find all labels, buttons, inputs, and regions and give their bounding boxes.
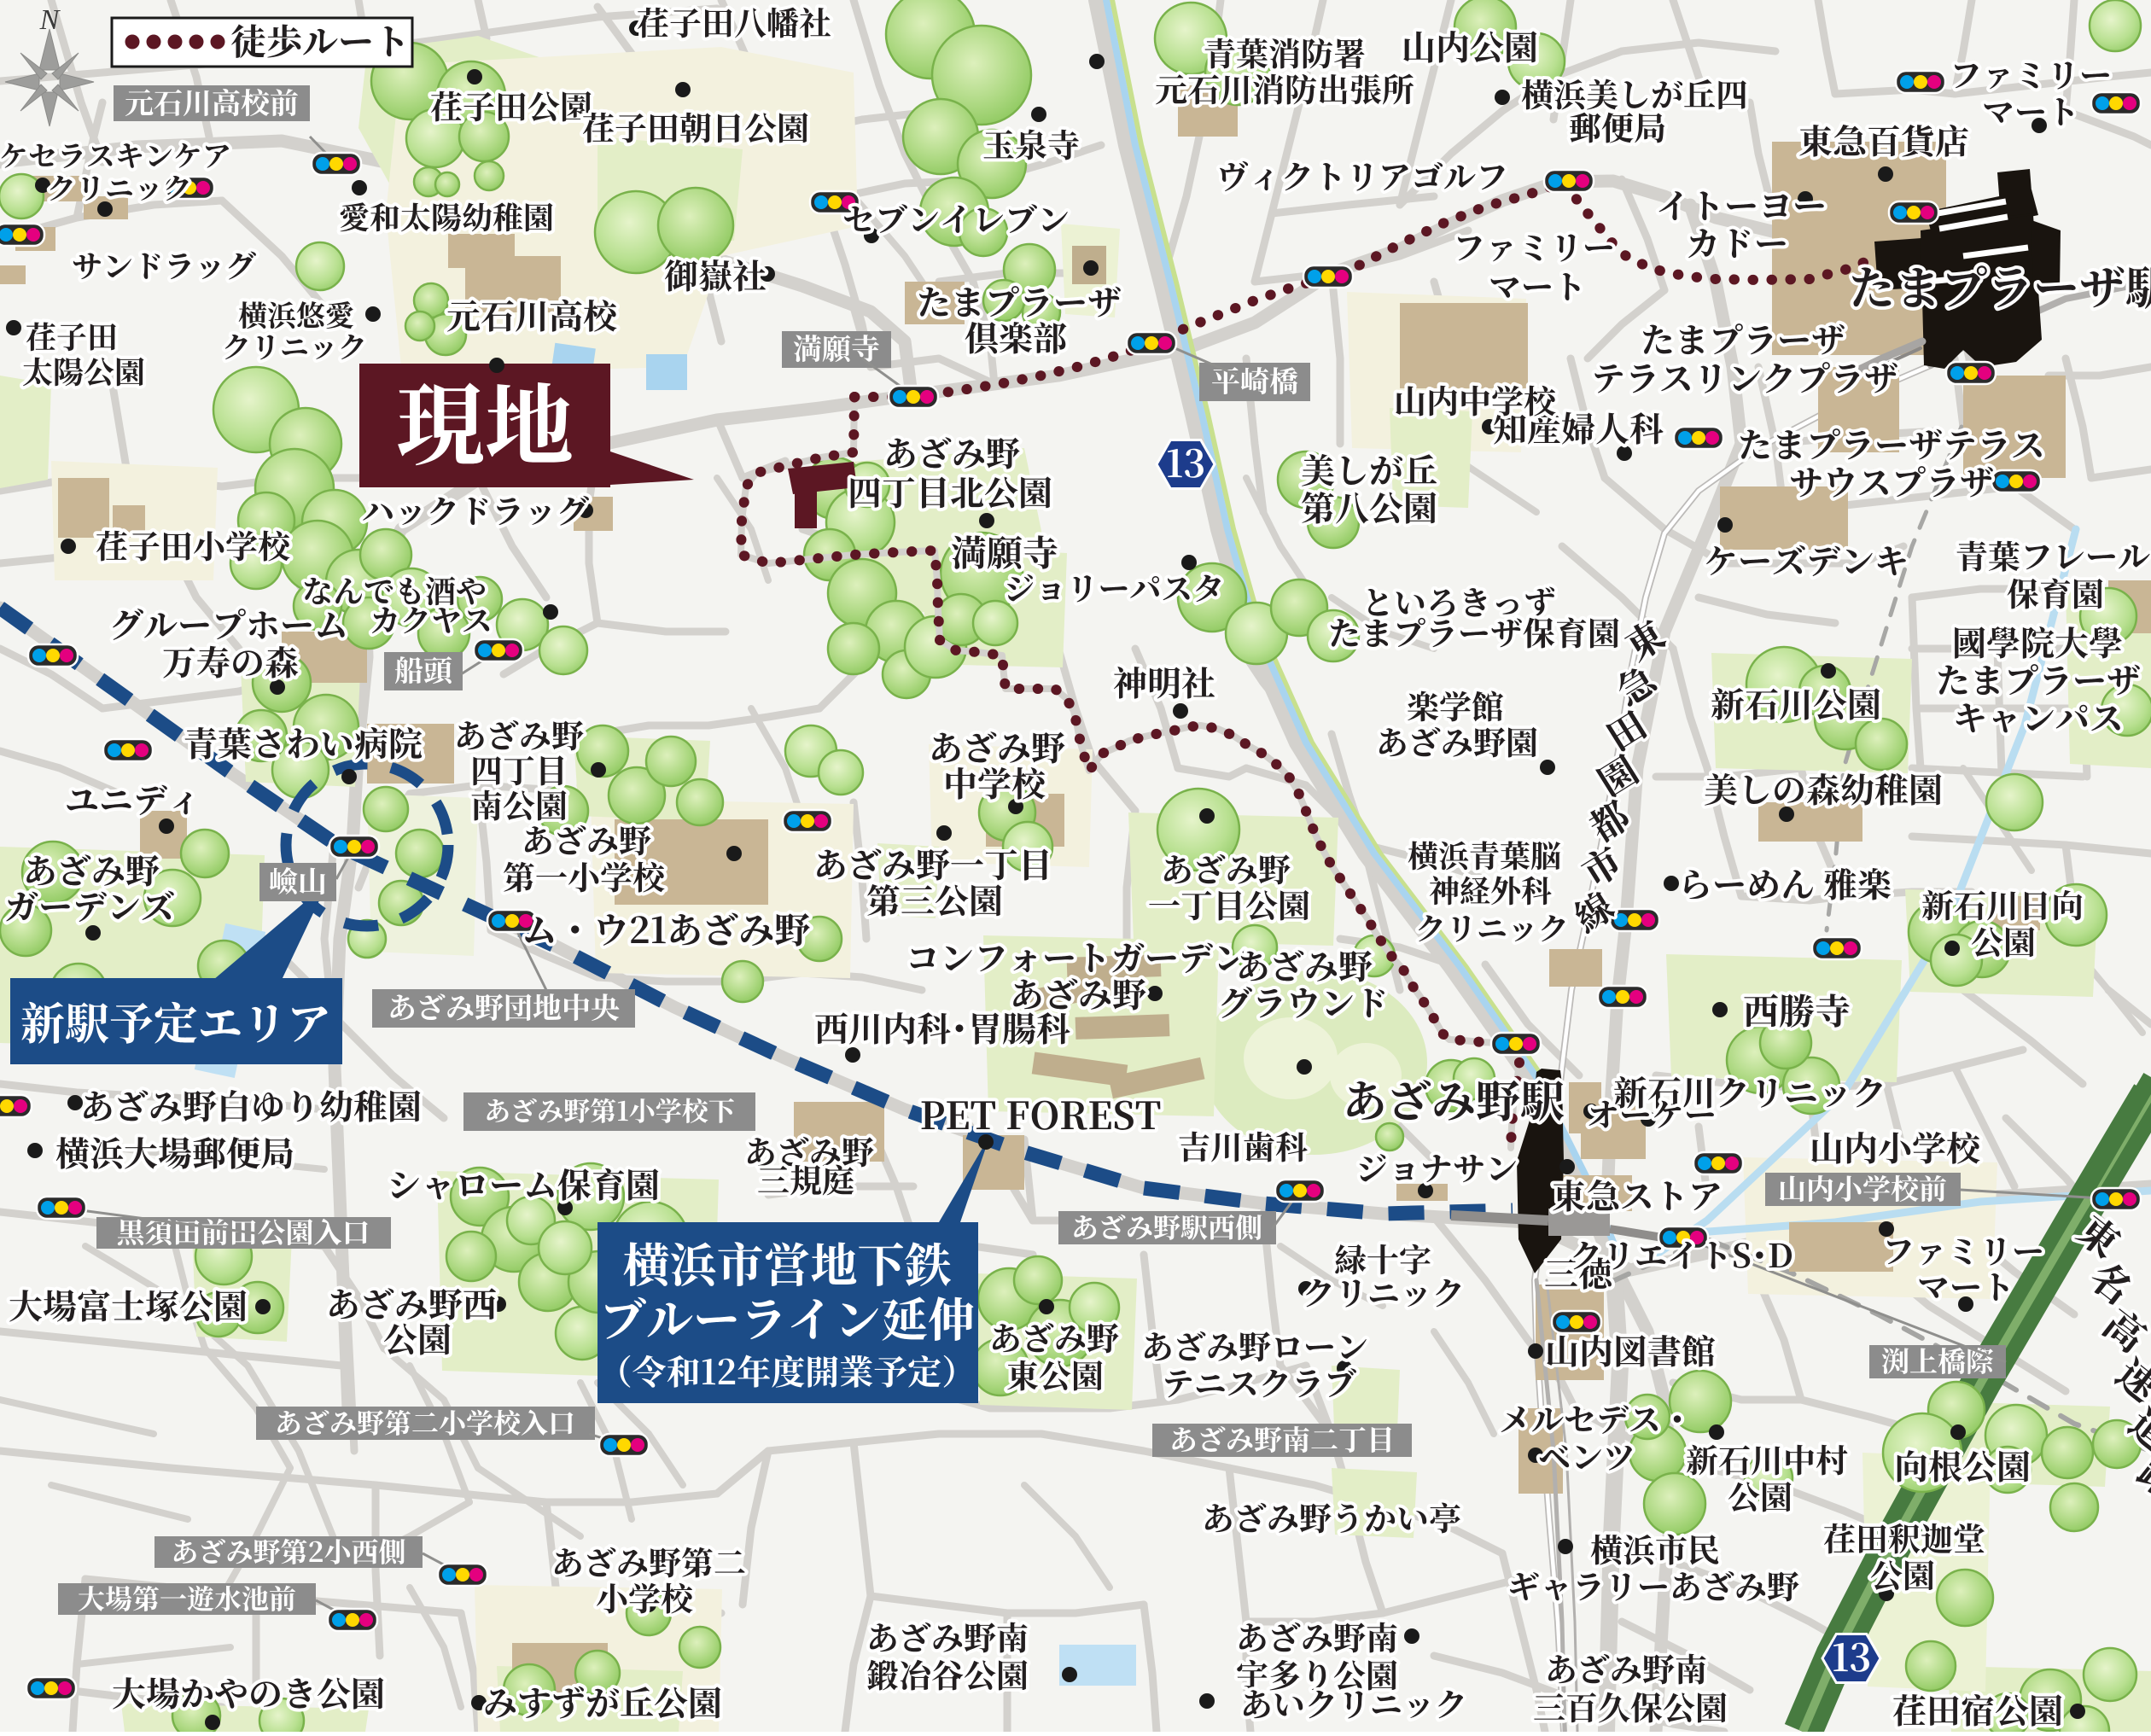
svg-text:たまプラーザ駅: たまプラーザ駅 <box>1849 253 2151 318</box>
svg-text:玉泉寺: 玉泉寺 <box>982 119 1080 166</box>
svg-text:PET FOREST: PET FOREST <box>920 1086 1162 1140</box>
svg-text:セブンイレブン: セブンイレブン <box>842 194 1070 241</box>
svg-text:クリニック: クリニック <box>1303 1267 1465 1314</box>
svg-text:保育園: 保育園 <box>2007 568 2104 615</box>
svg-text:三規庭: 三規庭 <box>757 1155 854 1202</box>
svg-text:荏田宿公園: 荏田宿公園 <box>1892 1685 2063 1732</box>
svg-text:山内小学校: 山内小学校 <box>1810 1122 1983 1171</box>
svg-text:平崎橋: 平崎橋 <box>1211 358 1298 400</box>
svg-text:サウスプラザ: サウスプラザ <box>1789 457 1994 505</box>
svg-text:あざみ野第二小学校入口: あざみ野第二小学校入口 <box>275 1402 575 1442</box>
svg-text:マート: マート <box>1489 261 1586 308</box>
svg-text:サンドラッグ: サンドラッグ <box>72 243 256 287</box>
svg-text:山内図書館: 山内図書館 <box>1545 1325 1716 1374</box>
svg-text:公園: 公園 <box>1971 917 2036 964</box>
svg-text:あいクリニック: あいクリニック <box>1240 1679 1467 1726</box>
svg-text:元石川高校前: 元石川高校前 <box>125 80 299 122</box>
svg-text:第三公園: 第三公園 <box>866 875 1003 923</box>
svg-text:鍛冶谷公園: 鍛冶谷公園 <box>866 1650 1029 1697</box>
svg-text:13: 13 <box>1832 1628 1872 1682</box>
svg-text:公園: 公園 <box>1728 1471 1792 1518</box>
svg-text:万寿の森: 万寿の森 <box>162 637 299 685</box>
svg-text:みすずが丘公園: みすずが丘公園 <box>483 1677 722 1726</box>
svg-text:クリニック: クリニック <box>1415 906 1569 949</box>
svg-text:元石川高校: 元石川高校 <box>446 290 620 339</box>
svg-text:あざみ野駅西側: あざみ野駅西側 <box>1071 1207 1262 1246</box>
svg-text:新石川公園: 新石川公園 <box>1711 679 1881 727</box>
svg-text:マート: マート <box>1917 1261 2014 1308</box>
svg-text:グラウンド: グラウンド <box>1218 977 1389 1026</box>
svg-text:たまプラーザ保育園: たまプラーザ保育園 <box>1328 608 1620 655</box>
svg-text:テニスクラブ: テニスクラブ <box>1162 1358 1356 1405</box>
svg-text:ユニディ: ユニディ <box>65 774 201 823</box>
svg-text:あざみ野第2小西側: あざみ野第2小西側 <box>171 1531 405 1570</box>
svg-text:西勝寺: 西勝寺 <box>1743 984 1851 1035</box>
svg-text:大場第一遊水池前: 大場第一遊水池前 <box>78 1578 296 1617</box>
svg-text:オーケー: オーケー <box>1587 1089 1717 1136</box>
svg-text:現地: 現地 <box>396 355 574 483</box>
svg-text:シャローム保育園: シャローム保育園 <box>387 1159 660 1208</box>
svg-text:徒歩ルート: 徒歩ルート <box>230 15 410 66</box>
svg-text:倶楽部: 倶楽部 <box>965 312 1067 361</box>
svg-text:ケーズデンキ: ケーズデンキ <box>1704 535 1909 584</box>
svg-text:あざみ野第1小学校下: あざみ野第1小学校下 <box>484 1090 735 1128</box>
svg-text:山内公園: 山内公園 <box>1402 21 1538 70</box>
svg-text:吉川歯科: 吉川歯科 <box>1178 1121 1308 1168</box>
svg-text:一丁目公園: 一丁目公園 <box>1148 880 1310 927</box>
svg-text:（令和12年度開業予定）: （令和12年度開業予定） <box>598 1346 976 1395</box>
svg-text:元石川消防出張所: 元石川消防出張所 <box>1155 64 1414 111</box>
svg-text:荏子田八幡社: 荏子田八幡社 <box>637 0 831 44</box>
svg-text:東急百貨店: 東急百貨店 <box>1798 115 1969 164</box>
svg-text:船頭: 船頭 <box>394 648 454 690</box>
svg-text:荏子田小学校: 荏子田小学校 <box>96 521 293 568</box>
svg-text:新駅予定エリア: 新駅予定エリア <box>20 988 331 1052</box>
svg-text:東急ストア: 東急ストア <box>1552 1170 1723 1219</box>
svg-text:クリニック: クリニック <box>47 166 192 207</box>
svg-text:テラスリンクプラザ: テラスリンクプラザ <box>1591 352 1898 401</box>
svg-text:東公園: 東公園 <box>1006 1350 1104 1397</box>
svg-text:神明社: 神明社 <box>1113 657 1215 706</box>
svg-text:マート: マート <box>1982 86 2079 133</box>
svg-text:あざみ野南二丁目: あざみ野南二丁目 <box>1169 1419 1395 1459</box>
svg-text:第一小学校: 第一小学校 <box>503 852 667 899</box>
svg-text:カクヤス: カクヤス <box>370 597 493 641</box>
svg-text:公園: 公園 <box>383 1314 452 1362</box>
svg-text:大場富士塚公園: 大場富士塚公園 <box>9 1280 248 1329</box>
svg-text:四丁目北公園: 四丁目北公園 <box>848 467 1052 516</box>
svg-text:郵便局: 郵便局 <box>1569 102 1666 149</box>
svg-text:ギャラリーあざみ野: ギャラリーあざみ野 <box>1507 1561 1799 1608</box>
svg-text:美しの森幼稚園: 美しの森幼稚園 <box>1704 764 1943 813</box>
svg-text:N: N <box>39 4 61 36</box>
svg-text:キャンパス: キャンパス <box>1953 692 2124 741</box>
svg-text:クリエイトS･D: クリエイトS･D <box>1570 1230 1793 1277</box>
svg-text:三百久保公園: 三百久保公園 <box>1533 1682 1728 1729</box>
svg-text:カドー: カドー <box>1686 218 1788 266</box>
svg-text:ハックドラッグ: ハックドラッグ <box>362 486 589 533</box>
svg-text:あざみ野団地中央: あざみ野団地中央 <box>388 985 620 1027</box>
svg-text:西川内科･胃腸科: 西川内科･胃腸科 <box>814 1003 1070 1052</box>
svg-text:横浜大場郵便局: 横浜大場郵便局 <box>55 1127 294 1176</box>
svg-text:御嶽社: 御嶽社 <box>664 250 767 299</box>
svg-text:愛和太陽幼稚園: 愛和太陽幼稚園 <box>339 195 554 238</box>
svg-text:ジョリーパスタ: ジョリーパスタ <box>1004 563 1225 609</box>
svg-text:13: 13 <box>1166 434 1206 488</box>
svg-text:ブルーライン延伸: ブルーライン延伸 <box>599 1283 975 1350</box>
svg-text:小学校: 小学校 <box>596 1573 696 1620</box>
svg-text:クリニック: クリニック <box>222 324 367 366</box>
svg-text:大場かやのき公園: 大場かやのき公園 <box>112 1668 385 1716</box>
svg-text:第八公園: 第八公園 <box>1301 482 1437 531</box>
svg-text:太陽公園: 太陽公園 <box>22 349 145 393</box>
svg-text:山内中学校: 山内中学校 <box>1394 376 1559 422</box>
svg-text:青葉さわい病院: 青葉さわい病院 <box>184 718 423 766</box>
svg-text:あざみ野うかい亭: あざみ野うかい亭 <box>1202 1493 1461 1540</box>
svg-text:あざみ野園: あざみ野園 <box>1376 717 1538 764</box>
svg-text:中学校: 中学校 <box>943 758 1048 807</box>
svg-text:荏子田朝日公園: 荏子田朝日公園 <box>582 102 809 149</box>
svg-text:ジョナサン: ジョナサン <box>1355 1143 1518 1190</box>
svg-text:公園: 公園 <box>1870 1550 1935 1597</box>
svg-text:山内小学校前: 山内小学校前 <box>1778 1168 1947 1208</box>
svg-text:向根公園: 向根公園 <box>1894 1441 2031 1489</box>
svg-text:ガーデンズ: ガーデンズ <box>4 881 175 929</box>
svg-text:渕上橋際: 渕上橋際 <box>1881 1340 1995 1380</box>
svg-text:ヴィクトリアゴルフ: ヴィクトリアゴルフ <box>1216 151 1508 198</box>
svg-text:あざみ野駅: あざみ野駅 <box>1343 1066 1565 1130</box>
svg-text:あざみ野白ゆり幼稚園: あざみ野白ゆり幼稚園 <box>80 1081 422 1129</box>
svg-text:ム・ウ21あざみ野: ム・ウ21あざみ野 <box>522 903 811 954</box>
svg-text:らーめん 雅楽: らーめん 雅楽 <box>1678 859 1892 907</box>
svg-text:嶮山: 嶮山 <box>269 859 327 900</box>
svg-text:ベンツ: ベンツ <box>1538 1431 1635 1478</box>
svg-text:荏子田公園: 荏子田公園 <box>430 81 592 128</box>
